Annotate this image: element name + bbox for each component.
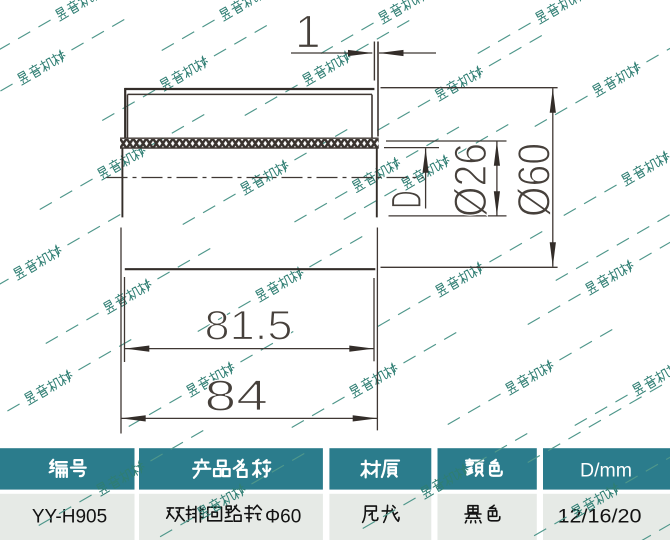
svg-text:Φ60: Φ60 [265, 507, 301, 528]
svg-text:81.5: 81.5 [205, 302, 293, 349]
svg-text:D/mm: D/mm [580, 460, 632, 482]
svg-text:1: 1 [295, 6, 321, 58]
svg-text:12/16/20: 12/16/20 [558, 506, 642, 528]
svg-text:Ø60: Ø60 [509, 143, 560, 217]
svg-text:Ø26: Ø26 [445, 143, 496, 217]
svg-text:YY-H905: YY-H905 [32, 507, 107, 528]
svg-text:D: D [384, 191, 431, 209]
svg-text:84: 84 [205, 372, 269, 421]
